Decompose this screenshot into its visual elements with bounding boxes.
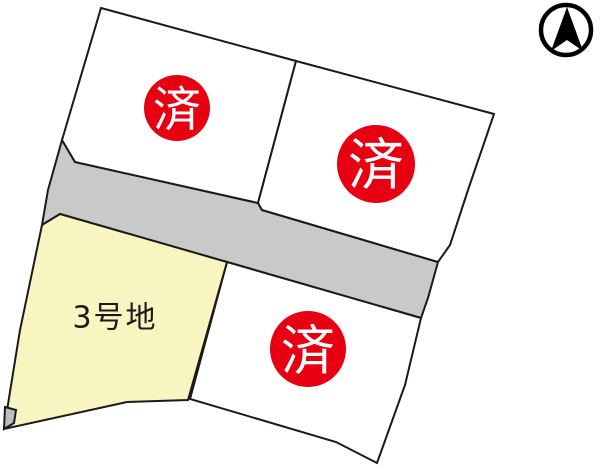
sold-badge-top-right: 済 bbox=[337, 125, 415, 203]
lot-3-label: 3号地 bbox=[72, 301, 157, 336]
lot-map: 済 済 済 3号地 bbox=[0, 0, 600, 467]
north-arrow-icon bbox=[541, 5, 591, 55]
compass-needle bbox=[551, 7, 583, 51]
lot-map-canvas: 済 済 済 3号地 bbox=[0, 0, 600, 467]
sold-badge-text: 済 bbox=[153, 82, 201, 138]
sold-badge-top-left: 済 bbox=[144, 75, 210, 141]
sold-badge-text: 済 bbox=[348, 134, 404, 199]
sold-badge-bottom-right: 済 bbox=[270, 311, 346, 387]
sold-badge-text: 済 bbox=[281, 320, 335, 383]
